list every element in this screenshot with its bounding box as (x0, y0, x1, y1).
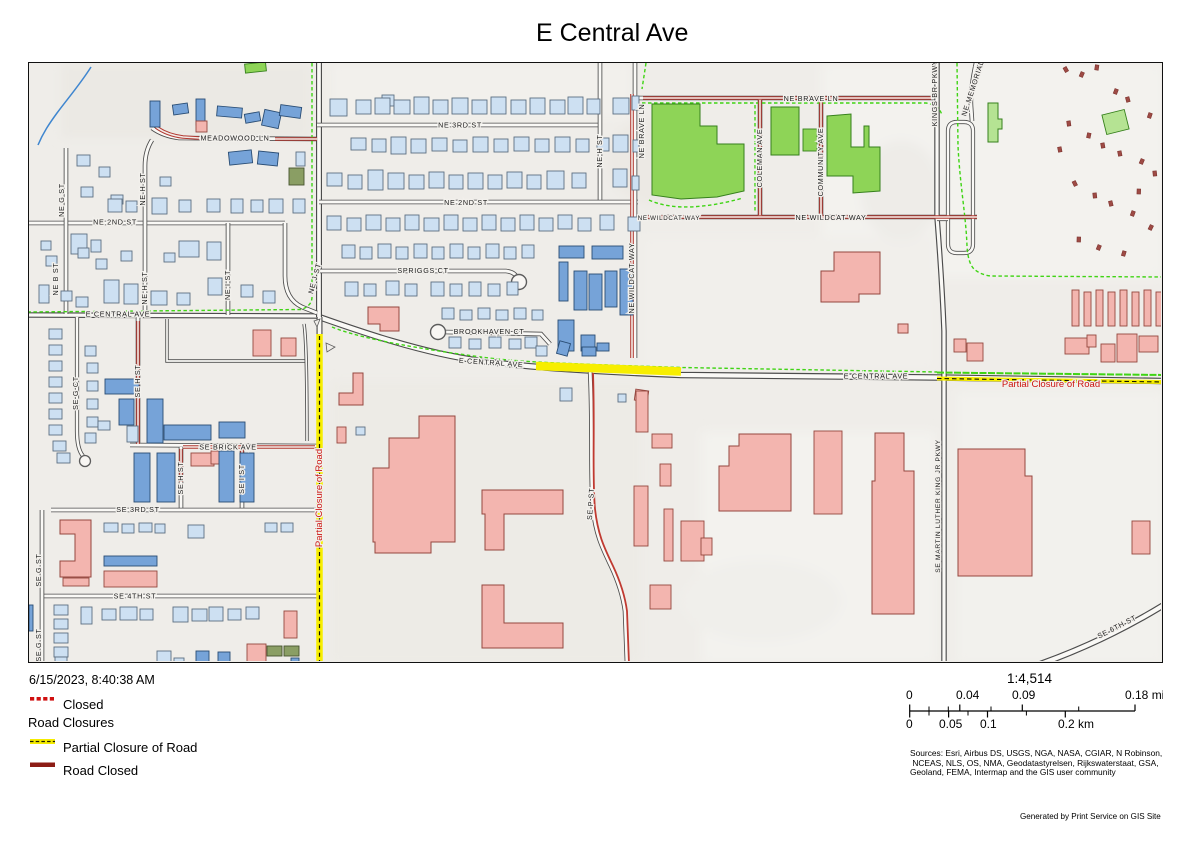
svg-text:NE 3RD ST: NE 3RD ST (438, 121, 482, 130)
svg-text:NE B ST: NE B ST (51, 263, 60, 296)
svg-text:SE MARTIN LUTHER KING JR PKWY: SE MARTIN LUTHER KING JR PKWY (935, 439, 942, 572)
svg-text:NE G ST: NE G ST (57, 183, 66, 217)
svg-text:0.05: 0.05 (939, 717, 963, 730)
svg-text:SE G ST: SE G ST (34, 553, 43, 586)
svg-text:Partial Closure of Road: Partial Closure of Road (314, 449, 325, 547)
svg-text:NE I ST: NE I ST (223, 270, 232, 300)
svg-text:0.1: 0.1 (980, 717, 997, 730)
svg-text:COLEMAN AVE: COLEMAN AVE (755, 129, 764, 188)
svg-text:0.2 km: 0.2 km (1058, 717, 1094, 730)
svg-text:0.04: 0.04 (956, 688, 980, 702)
svg-text:BROOKHAVEN CT: BROOKHAVEN CT (454, 327, 525, 336)
svg-text:NE 2ND ST: NE 2ND ST (444, 198, 488, 207)
svg-text:NE H ST: NE H ST (138, 172, 147, 205)
svg-text:SE G ST: SE G ST (34, 628, 43, 661)
svg-text:SPRIGGS CT: SPRIGGS CT (397, 266, 448, 275)
svg-text:SE 3RD ST: SE 3RD ST (116, 505, 159, 514)
svg-text:SE H ST: SE H ST (176, 462, 185, 495)
svg-text:Partial Closure of Road: Partial Closure of Road (1002, 379, 1100, 390)
svg-text:NE BRAVE LN: NE BRAVE LN (637, 104, 646, 159)
svg-text:NE BRAVE LN: NE BRAVE LN (784, 94, 839, 103)
svg-text:0: 0 (906, 717, 913, 730)
svg-text:NE WILDCAT WAY: NE WILDCAT WAY (627, 242, 636, 313)
svg-text:NE H ST: NE H ST (595, 134, 604, 167)
svg-text:KINGS BR PKWY: KINGS BR PKWY (930, 63, 939, 126)
svg-text:SE I ST: SE I ST (237, 464, 246, 494)
svg-text:0.18 mi: 0.18 mi (1125, 688, 1163, 702)
svg-text:COMMUNITY AVE: COMMUNITY AVE (816, 128, 825, 197)
svg-text:NE WILDCAT WAY: NE WILDCAT WAY (795, 213, 866, 222)
svg-text:SE 4TH ST: SE 4TH ST (114, 592, 157, 601)
svg-text:NE WILDCAT WAY: NE WILDCAT WAY (638, 215, 701, 222)
svg-text:NE 2ND ST: NE 2ND ST (93, 218, 137, 227)
svg-text:0: 0 (906, 688, 913, 702)
svg-text:E CENTRAL AVE: E CENTRAL AVE (86, 310, 151, 319)
svg-text:SE G CT: SE G CT (71, 376, 80, 410)
svg-text:E CENTRAL AVE: E CENTRAL AVE (844, 372, 909, 381)
svg-text:NE H ST: NE H ST (140, 271, 149, 304)
svg-text:MEADOWOOD LN: MEADOWOOD LN (200, 134, 269, 143)
svg-text:0.09: 0.09 (1012, 688, 1036, 702)
svg-text:SE BRICK AVE: SE BRICK AVE (199, 443, 256, 452)
svg-text:SE H ST: SE H ST (133, 365, 142, 398)
